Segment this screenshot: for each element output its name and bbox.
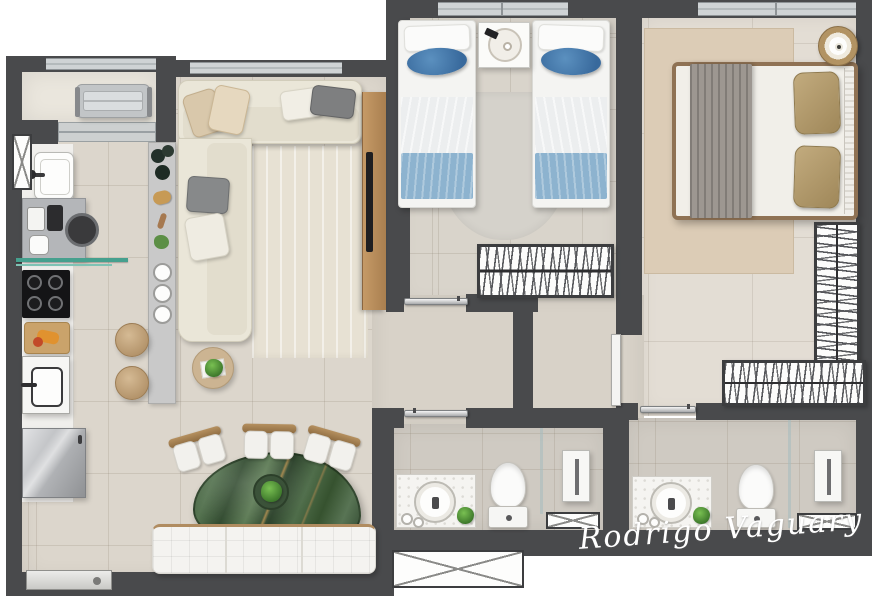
toilet-bowl xyxy=(490,462,526,508)
door-handle xyxy=(457,296,460,301)
stool xyxy=(115,366,149,400)
coffee-machine xyxy=(27,207,45,231)
utensil xyxy=(157,212,168,229)
side-table xyxy=(192,347,234,389)
herbs xyxy=(154,235,169,249)
bench-seam xyxy=(301,527,303,573)
double-bed xyxy=(672,62,858,220)
shower-valve xyxy=(827,459,831,495)
bowl-dark xyxy=(155,165,170,180)
faucet-bath2 xyxy=(668,498,675,510)
wardrobe-master-horizontal xyxy=(722,360,866,406)
burner xyxy=(48,275,63,290)
cutting-board xyxy=(24,322,70,354)
burner xyxy=(27,275,42,290)
chair-cushion xyxy=(270,431,294,459)
wall-between-baths xyxy=(603,418,629,532)
door-bath1 xyxy=(404,410,468,417)
towel-roll xyxy=(413,517,424,528)
sofa-top-section xyxy=(178,80,362,144)
chair-cushion xyxy=(327,439,358,473)
single-bed-right xyxy=(532,20,610,208)
laundry-sink xyxy=(34,152,74,200)
window-living xyxy=(190,62,342,74)
glass-partition-bath1 xyxy=(540,428,543,514)
toilet-tank xyxy=(488,506,528,528)
espresso-machine xyxy=(47,205,63,231)
ac-unit xyxy=(76,84,150,118)
door-handle xyxy=(413,408,416,413)
glass-shelf-lower xyxy=(16,264,112,266)
door-handle xyxy=(687,404,690,409)
wall-hall-divider xyxy=(513,294,533,410)
food-item-tomato xyxy=(33,337,43,347)
bed-headboard xyxy=(844,68,854,214)
door-bath2 xyxy=(640,406,696,413)
tv xyxy=(366,152,373,252)
wall-balcony-right-column xyxy=(156,56,176,144)
rug-living-room xyxy=(252,146,368,358)
bed-pillow-tan xyxy=(793,145,841,209)
faucet-bath1 xyxy=(432,497,439,509)
wardrobe-twin-hangers xyxy=(477,244,614,298)
round-pouf xyxy=(818,26,858,66)
tufted-bench xyxy=(152,524,376,574)
door-master-bedroom xyxy=(611,334,621,406)
chair-cushion xyxy=(196,433,227,467)
sofa-pillow-gray xyxy=(186,176,230,215)
centerpiece-plant xyxy=(261,481,282,502)
ac-unit-cap-right xyxy=(147,87,152,117)
duct-shaft-bottom xyxy=(392,550,524,588)
bed-gray-throw xyxy=(690,64,752,218)
kettle xyxy=(29,235,49,255)
balcony-sliding-door xyxy=(58,122,156,142)
laundry-sink-basin xyxy=(40,159,70,195)
cooktop xyxy=(22,270,70,318)
nightstand xyxy=(478,22,530,68)
wall-master-left xyxy=(616,0,642,335)
shower-column-bath2 xyxy=(814,450,842,502)
burner xyxy=(27,296,42,311)
toilet-bowl xyxy=(738,464,774,510)
window-master-bedroom xyxy=(698,2,856,16)
plate xyxy=(153,284,172,303)
sofa-left-section xyxy=(178,138,252,342)
bench-seam xyxy=(225,527,227,573)
bed-duvet xyxy=(535,97,607,155)
chair-cushion xyxy=(244,431,268,459)
bed-blue-throw xyxy=(535,153,607,199)
sofa-pillow-white xyxy=(183,212,230,262)
washer-drum xyxy=(65,213,99,247)
stool xyxy=(115,323,149,357)
entry-door-handle xyxy=(93,577,101,585)
towel-roll xyxy=(401,513,413,525)
plate xyxy=(153,305,172,324)
duct-shaft-left xyxy=(12,134,32,190)
kitchen-sink-basin xyxy=(31,367,63,407)
window-twin-bedroom xyxy=(438,2,568,16)
refrigerator xyxy=(22,428,86,498)
entry-door xyxy=(26,570,112,590)
window-balcony xyxy=(46,58,156,70)
glass-shelf xyxy=(16,258,128,262)
plant-bath1 xyxy=(457,507,474,524)
plate xyxy=(153,263,172,282)
refrigerator-shine xyxy=(23,429,87,497)
kitchen-faucet xyxy=(21,383,37,387)
floor-plan: Rodrigo Vaguary xyxy=(0,0,880,600)
burner xyxy=(48,296,63,311)
wall-twin-bottom-a xyxy=(386,294,404,312)
bowl-dark xyxy=(162,145,174,157)
vanity-counter-bath1 xyxy=(396,474,476,528)
bed-duvet xyxy=(401,97,473,155)
dining-chair xyxy=(242,424,297,465)
washing-machine-coffee-station xyxy=(22,198,86,260)
window-mullion xyxy=(501,3,503,15)
flush-button xyxy=(506,515,512,521)
sofa-pillow-gray xyxy=(309,84,356,119)
kitchen-sink xyxy=(22,356,70,414)
shower-valve xyxy=(575,459,579,495)
table-centerpiece xyxy=(253,474,289,510)
wall-dining-right xyxy=(372,420,394,596)
single-bed-left xyxy=(398,20,476,208)
bed-blue-throw xyxy=(401,153,473,199)
shower-column-bath1 xyxy=(562,450,590,502)
ac-unit-grille xyxy=(83,91,143,111)
toilet-bath1 xyxy=(488,462,528,528)
wall-hall-bottom-b xyxy=(466,408,620,428)
bed-pillow-tan xyxy=(793,71,841,135)
door-twin-bedroom xyxy=(404,298,468,305)
bread-loaf xyxy=(152,189,173,206)
coffee-cup xyxy=(503,42,512,51)
window-mullion xyxy=(775,3,777,15)
island-counter xyxy=(148,142,176,404)
side-table-plant xyxy=(205,359,223,377)
ac-unit-cap-left xyxy=(75,87,80,117)
pouf-button xyxy=(835,43,843,51)
